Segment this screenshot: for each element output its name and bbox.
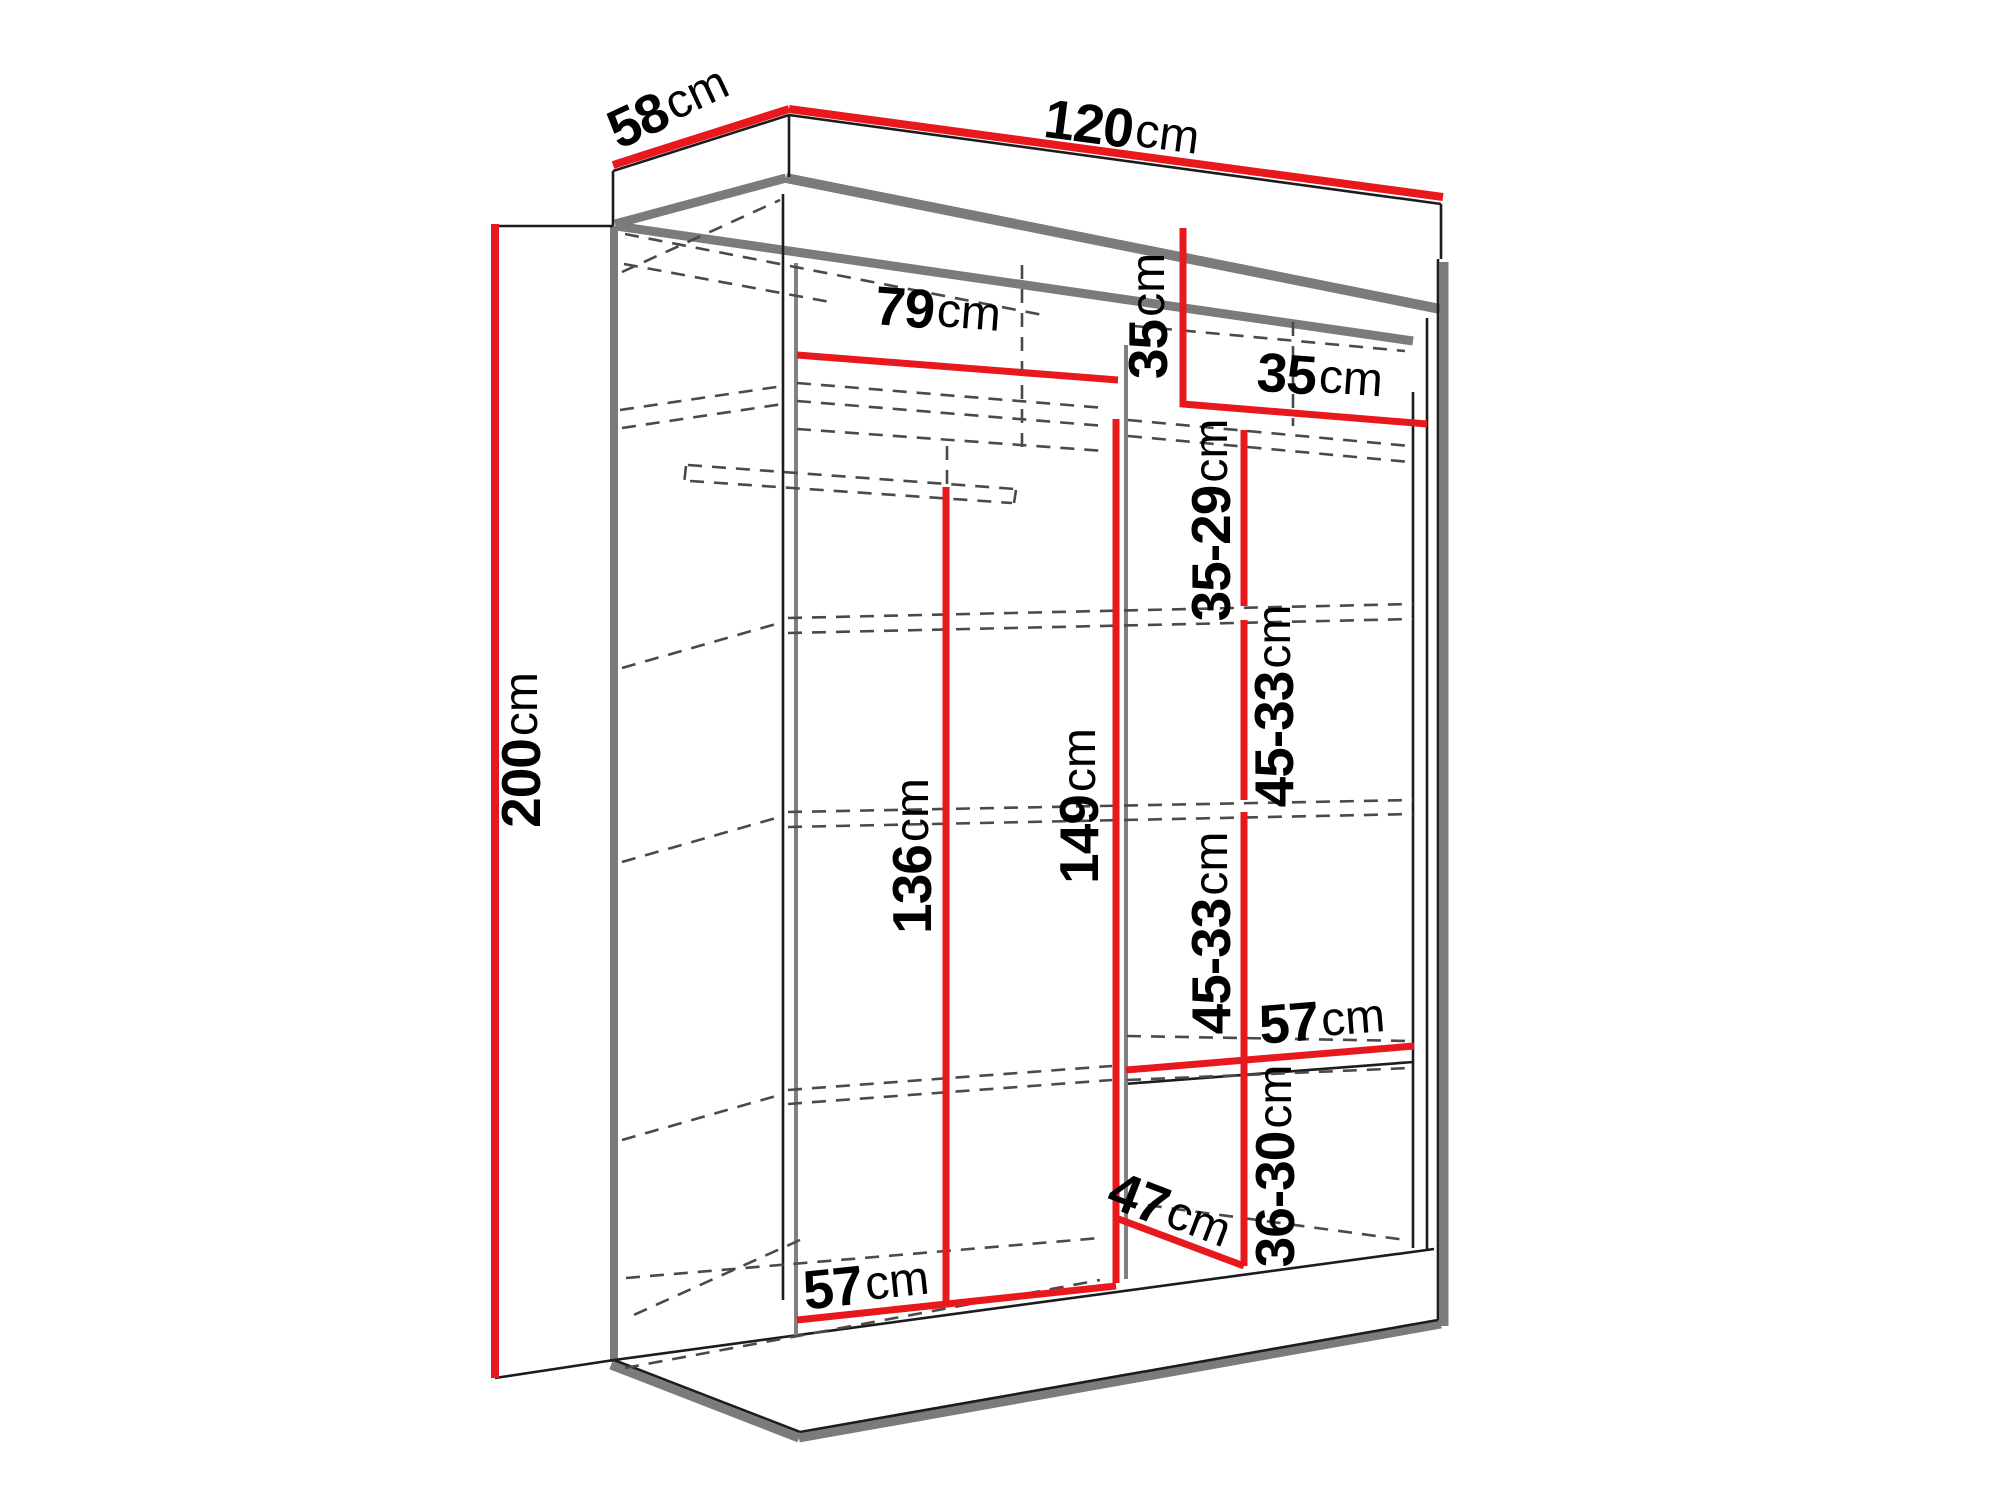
label-57cm-bottom-unit: cm bbox=[862, 1251, 931, 1310]
label-136cm: 136cm bbox=[881, 778, 943, 934]
dash-shelf4-strip bbox=[622, 1094, 783, 1140]
label-35cm-left: 35cm bbox=[1117, 253, 1179, 379]
dash-shelf2-a bbox=[788, 604, 1413, 618]
label-200cm-unit: cm bbox=[495, 672, 548, 736]
plinth-left-shadow bbox=[611, 1365, 799, 1438]
label-36-30cm-value: 36-30 bbox=[1244, 1132, 1306, 1268]
label-47cm: 47cm bbox=[1100, 1158, 1240, 1261]
label-35cm-left-unit: cm bbox=[1122, 253, 1175, 317]
label-47cm-unit: cm bbox=[1160, 1185, 1239, 1257]
dash-shelf1-strip-a bbox=[620, 386, 783, 410]
label-35cm-left-value: 35 bbox=[1117, 319, 1179, 379]
dash-shelf1R-b bbox=[1128, 436, 1410, 462]
plinth-left-bottom bbox=[614, 1360, 800, 1432]
dash-floor-corner bbox=[627, 1240, 800, 1318]
plinth-front-shadow bbox=[799, 1324, 1441, 1438]
dash-rail-cap-left bbox=[684, 466, 686, 484]
label-120cm: 120cm bbox=[1041, 87, 1204, 169]
label-57cm-right-value: 57 bbox=[1257, 989, 1321, 1055]
dimline-79cm bbox=[797, 355, 1118, 380]
label-35-29cm-value: 35-29 bbox=[1180, 486, 1242, 622]
dash-shelf1-int-c bbox=[797, 429, 1105, 451]
label-136cm-unit: cm bbox=[886, 778, 939, 842]
label-200cm-value: 200 bbox=[490, 739, 552, 828]
dash-shelf1-int-a bbox=[797, 383, 1105, 408]
dash-shelf4-b bbox=[788, 1080, 1112, 1104]
label-35cm-right: 35cm bbox=[1255, 341, 1385, 412]
label-120cm-value: 120 bbox=[1041, 87, 1137, 160]
label-57cm-bottom-value: 57 bbox=[800, 1254, 865, 1322]
crown-underside-left bbox=[615, 178, 786, 224]
label-149cm-unit: cm bbox=[1053, 728, 1106, 792]
label-36-30cm: 36-30cm bbox=[1244, 1065, 1306, 1268]
label-45-33cm-upper-unit: cm bbox=[1248, 605, 1301, 669]
wardrobe-dimension-diagram: 58cm120cm200cm79cm35cm35cm35-29cm45-33cm… bbox=[0, 0, 2000, 1500]
label-45-33cm-upper-value: 45-33 bbox=[1243, 672, 1305, 808]
label-36-30cm-unit: cm bbox=[1249, 1065, 1302, 1129]
label-57cm-right: 57cm bbox=[1257, 984, 1388, 1056]
wardrobe-dimension-diagram-page: 58cm120cm200cm79cm35cm35cm35-29cm45-33cm… bbox=[0, 0, 2000, 1500]
dash-shelf3-strip bbox=[622, 816, 783, 862]
tick-200-bottom bbox=[495, 1360, 614, 1378]
dash-shelf2-strip bbox=[622, 622, 783, 668]
label-35cm-right-unit: cm bbox=[1317, 350, 1385, 407]
label-149cm: 149cm bbox=[1048, 728, 1110, 884]
label-35cm-right-value: 35 bbox=[1255, 341, 1319, 407]
label-79cm: 79cm bbox=[873, 274, 1004, 346]
label-120cm-unit: cm bbox=[1132, 104, 1202, 165]
label-45-33cm-lower-unit: cm bbox=[1185, 832, 1238, 896]
label-45-33cm-lower-value: 45-33 bbox=[1180, 899, 1242, 1035]
dash-shelf4-a bbox=[788, 1066, 1112, 1090]
label-149cm-value: 149 bbox=[1048, 795, 1110, 884]
label-35-29cm-unit: cm bbox=[1185, 419, 1238, 483]
plinth-front-bottom bbox=[800, 1320, 1438, 1432]
label-79cm-value: 79 bbox=[873, 274, 937, 340]
dash-shelf2-b bbox=[788, 619, 1413, 633]
dash-top-back-short bbox=[624, 264, 830, 302]
label-45-33cm-lower: 45-33cm bbox=[1180, 832, 1242, 1035]
label-136cm-value: 136 bbox=[881, 845, 943, 934]
label-200cm: 200cm bbox=[490, 672, 552, 828]
dash-shelf1-int-b bbox=[797, 401, 1105, 426]
label-35-29cm: 35-29cm bbox=[1180, 419, 1242, 622]
dash-shelf1-strip-b bbox=[622, 404, 783, 428]
dimension-labels: 58cm120cm200cm79cm35cm35cm35-29cm45-33cm… bbox=[490, 51, 1387, 1321]
label-45-33cm-upper: 45-33cm bbox=[1243, 605, 1305, 808]
dash-rail-cap-right bbox=[1014, 490, 1016, 503]
label-79cm-unit: cm bbox=[935, 284, 1003, 342]
dash-shelf1R-a bbox=[1128, 420, 1410, 446]
dash-rail-top bbox=[688, 465, 1015, 489]
label-57cm-right-unit: cm bbox=[1319, 989, 1387, 1047]
